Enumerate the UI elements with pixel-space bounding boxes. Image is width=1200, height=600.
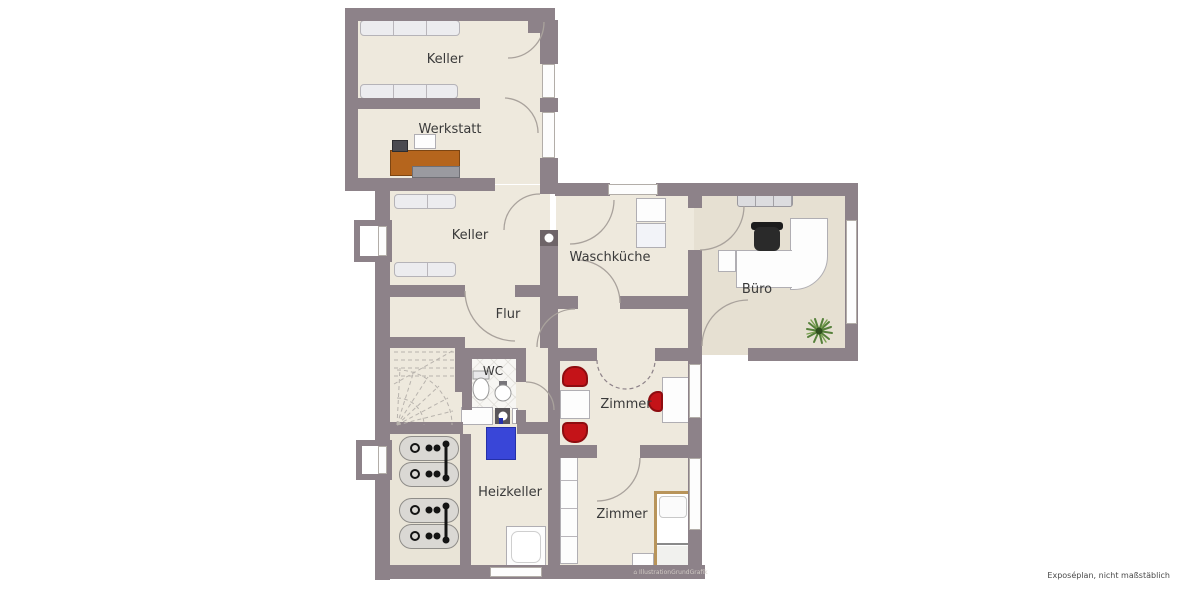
wall — [345, 8, 555, 21]
window — [689, 458, 701, 530]
floor-waschkueche — [556, 190, 694, 305]
plan-caption: Exposéplan, nicht maßstäblich — [1010, 571, 1170, 580]
shelf — [394, 194, 456, 209]
red-armchair — [562, 366, 588, 387]
bed-pillow — [659, 496, 687, 518]
wall — [390, 285, 465, 297]
dryer — [636, 223, 666, 248]
room-label-waschkueche: Waschküche — [555, 250, 665, 265]
workbench-machine-table — [412, 166, 460, 178]
desk-drawer-unit — [718, 250, 736, 272]
floor-plan: Keller Werkstatt Keller Waschküche Büro … — [0, 0, 1200, 600]
wall — [358, 98, 480, 109]
wall — [540, 98, 558, 112]
wall — [748, 348, 858, 361]
room-label-keller-mid: Keller — [425, 228, 515, 243]
shelf — [360, 20, 460, 36]
wall — [516, 348, 526, 382]
window — [608, 184, 658, 195]
wall — [345, 8, 358, 191]
wall — [656, 183, 858, 196]
washing-machine — [636, 198, 666, 222]
wall — [548, 360, 560, 565]
oil-tank — [399, 436, 459, 461]
side-table — [560, 390, 590, 419]
wall — [540, 20, 558, 64]
room-label-keller-top: Keller — [400, 52, 490, 67]
watermark: ⌂ IllustrationGrundGrafik — [618, 569, 723, 576]
room-label-heizkeller: Heizkeller — [462, 485, 558, 500]
window — [689, 364, 701, 418]
wall — [375, 337, 465, 348]
room-label-wc: WC — [470, 364, 516, 378]
room-label-buero: Büro — [722, 282, 792, 297]
workshop-machine — [392, 140, 408, 152]
oil-tank — [399, 524, 459, 549]
watermark-text: IllustrationGrundGrafik — [639, 569, 708, 576]
heating-boiler — [486, 427, 516, 460]
shelf — [394, 262, 456, 277]
wall — [556, 296, 578, 309]
wardrobe — [560, 452, 578, 564]
window — [378, 226, 387, 256]
oil-tank — [399, 498, 459, 523]
room-label-werkstatt: Werkstatt — [395, 122, 505, 137]
window — [846, 220, 857, 324]
bed-blanket-edge — [657, 543, 689, 545]
window — [542, 112, 555, 158]
bed-blanket — [657, 546, 689, 566]
door-hinge-block — [540, 230, 558, 246]
wall — [462, 348, 472, 410]
wall — [688, 196, 702, 208]
window — [542, 64, 555, 98]
wall — [515, 285, 542, 297]
desk-small — [662, 377, 691, 423]
shelf — [360, 84, 458, 99]
room-label-zimmer-2: Zimmer — [590, 507, 654, 522]
window — [378, 446, 387, 474]
room-label-flur: Flur — [485, 307, 531, 322]
oil-tank — [399, 462, 459, 487]
vanity-sink-panel — [495, 408, 510, 424]
wall — [375, 422, 463, 434]
shower-base-inner — [511, 531, 541, 563]
wall — [517, 422, 560, 434]
window — [490, 567, 542, 577]
wall — [555, 183, 610, 196]
wall — [688, 250, 702, 350]
office-chair — [754, 227, 780, 251]
wall — [345, 178, 495, 191]
red-armchair — [562, 422, 588, 443]
room-label-zimmer-1: Zimmer — [594, 397, 658, 412]
